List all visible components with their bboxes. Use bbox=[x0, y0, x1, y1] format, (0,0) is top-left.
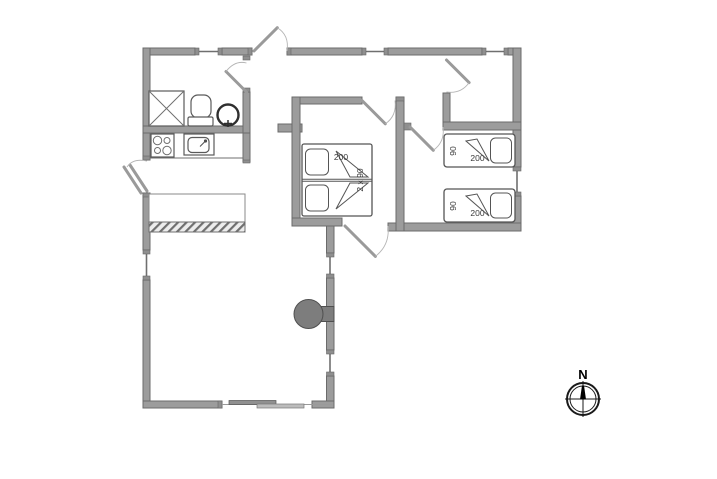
floor-plan-canvas: 200 2 x 90 90 200 90 200 N bbox=[0, 0, 717, 479]
north-compass-icon: N bbox=[565, 367, 601, 417]
dining-table bbox=[149, 194, 245, 222]
pillow bbox=[491, 193, 512, 218]
washbasin-icon bbox=[218, 105, 239, 128]
middle-bedroom-door bbox=[362, 101, 395, 124]
single-bed-1: 90 200 bbox=[444, 134, 515, 167]
kitchen-exterior-door bbox=[124, 156, 150, 197]
hatched-partition bbox=[149, 222, 245, 232]
toilet-icon bbox=[188, 95, 213, 126]
kitchen-sink-icon bbox=[184, 134, 214, 155]
double-bed-width-label: 2 x 90 bbox=[355, 168, 365, 191]
east-bedroom-door bbox=[410, 127, 443, 150]
bathroom-door bbox=[226, 56, 250, 92]
top-right-room-door bbox=[447, 60, 470, 92]
single-bed-1-length-label: 200 bbox=[470, 153, 484, 163]
single-bed-2: 90 200 bbox=[444, 189, 515, 222]
double-bed: 200 2 x 90 bbox=[302, 144, 372, 216]
hallway-door bbox=[345, 226, 388, 256]
stove-icon bbox=[151, 134, 174, 157]
compass-north-label: N bbox=[578, 367, 587, 382]
single-bed-1-width-label: 90 bbox=[448, 146, 458, 156]
single-bed-2-width-label: 90 bbox=[448, 201, 458, 211]
pillow bbox=[306, 149, 329, 175]
compass-needle bbox=[580, 386, 586, 400]
floor-plan-svg: 200 2 x 90 90 200 90 200 N bbox=[0, 0, 717, 479]
single-bed-2-length-label: 200 bbox=[470, 208, 484, 218]
double-bed-length-label: 200 bbox=[334, 152, 348, 162]
entrance-door bbox=[248, 28, 291, 55]
pillow bbox=[491, 138, 512, 163]
pillow bbox=[306, 185, 329, 211]
shower-icon bbox=[149, 91, 184, 126]
